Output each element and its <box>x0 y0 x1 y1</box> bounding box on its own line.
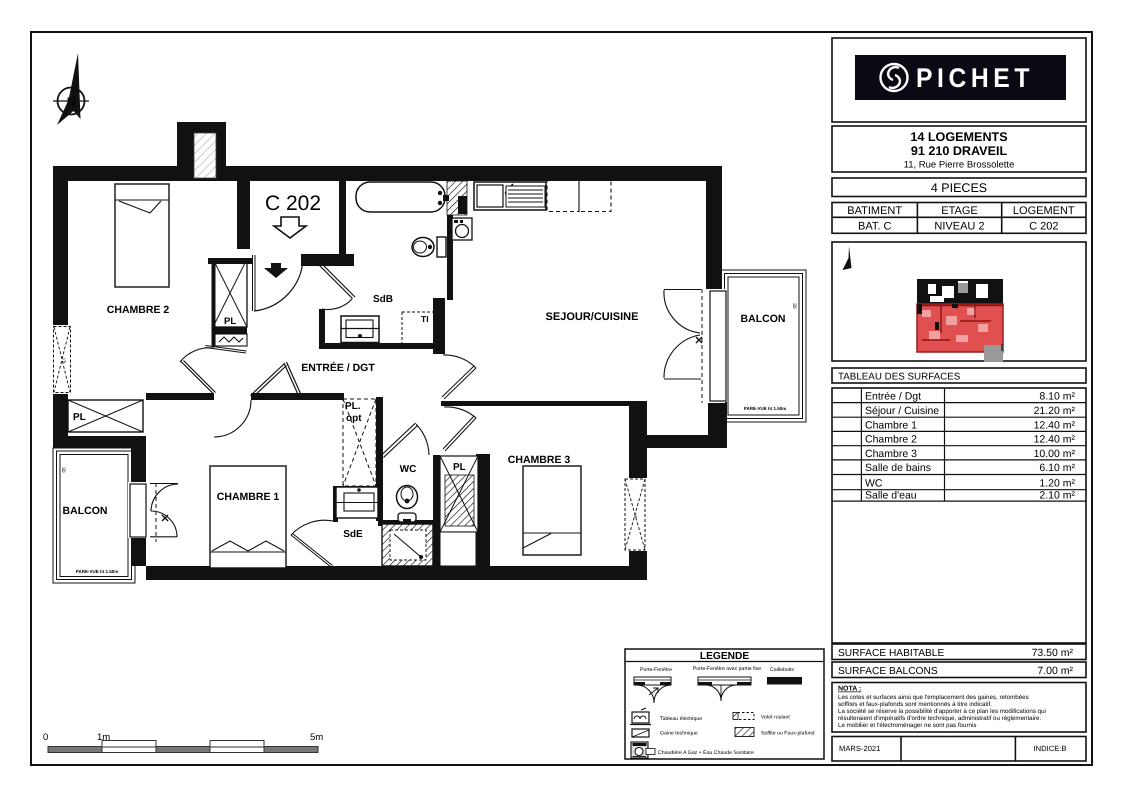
svg-text:Séjour / Cuisine: Séjour / Cuisine <box>865 405 939 417</box>
svg-text:Les cotes et surfaces ainsi qu: Les cotes et surfaces ainsi que l'emplac… <box>838 694 1029 701</box>
svg-text:5m: 5m <box>310 732 323 743</box>
svg-text:BALCON: BALCON <box>741 313 786 325</box>
svg-text:C 202: C 202 <box>265 192 321 215</box>
svg-text:Chambre 2: Chambre 2 <box>865 434 917 446</box>
svg-text:soffites et faux-plafonds sont: soffites et faux-plafonds sont mentionné… <box>838 701 992 708</box>
svg-text:WC: WC <box>865 477 883 489</box>
svg-text:Volet roulant: Volet roulant <box>761 715 790 721</box>
svg-text:2.10 m²: 2.10 m² <box>1039 490 1075 502</box>
svg-text:8.10 m²: 8.10 m² <box>1039 391 1075 403</box>
svg-text:30: 30 <box>60 467 66 473</box>
svg-text:12.40 m²: 12.40 m² <box>1034 419 1076 431</box>
svg-text:PL: PL <box>224 316 236 327</box>
svg-text:ENTRÉE / DGT: ENTRÉE / DGT <box>301 361 375 374</box>
svg-text:Caillebotis: Caillebotis <box>770 667 794 673</box>
svg-text:30: 30 <box>791 303 797 309</box>
svg-text:WC: WC <box>400 464 417 475</box>
svg-text:PARE-VUE ht 1.50m: PARE-VUE ht 1.50m <box>744 406 786 411</box>
svg-text:Salle d'eau: Salle d'eau <box>865 490 917 502</box>
svg-text:résulteraient d'impératifs d'o: résulteraient d'impératifs d'ordre techn… <box>838 715 1041 722</box>
svg-text:Le mobilier et l'électroménage: Le mobilier et l'électroménager ne sont … <box>838 722 976 729</box>
svg-text:6.10 m²: 6.10 m² <box>1039 462 1075 474</box>
svg-text:Chambre 1: Chambre 1 <box>865 419 917 431</box>
svg-text:LEGENDE: LEGENDE <box>700 651 749 662</box>
svg-text:BAT. C: BAT. C <box>858 221 891 233</box>
svg-text:PL: PL <box>453 462 466 473</box>
svg-text:CHAMBRE 1: CHAMBRE 1 <box>217 491 280 503</box>
svg-text:0: 0 <box>43 732 48 743</box>
svg-text:TI: TI <box>421 314 429 324</box>
svg-text:VR: VR <box>62 358 67 364</box>
svg-text:12.40 m²: 12.40 m² <box>1034 434 1076 446</box>
svg-text:7.00 m²: 7.00 m² <box>1037 665 1073 677</box>
svg-text:Entrée / Dgt: Entrée / Dgt <box>865 391 921 403</box>
svg-text:CHAMBRE 2: CHAMBRE 2 <box>107 304 170 316</box>
svg-text:C 202: C 202 <box>1029 221 1058 233</box>
svg-text:La société se réserve la possi: La société se réserve la possibilité d'a… <box>838 708 1046 715</box>
svg-text:TABLEAU DES SURFACES: TABLEAU DES SURFACES <box>838 372 961 383</box>
svg-text:SEJOUR/CUISINE: SEJOUR/CUISINE <box>546 311 639 323</box>
svg-text:PICHET: PICHET <box>916 63 1034 93</box>
svg-text:ETAGE: ETAGE <box>941 205 977 217</box>
svg-text:4 PIECES: 4 PIECES <box>931 181 987 195</box>
svg-text:VR: VR <box>633 513 638 519</box>
svg-text:BALCON: BALCON <box>63 505 108 517</box>
svg-text:91 210 DRAVEIL: 91 210 DRAVEIL <box>911 144 1008 158</box>
svg-text:Porte-Fenêtre: Porte-Fenêtre <box>640 667 672 673</box>
svg-text:Salle de bains: Salle de bains <box>865 462 931 474</box>
svg-text:SURFACE BALCONS: SURFACE BALCONS <box>838 666 938 677</box>
svg-text:N: N <box>67 95 76 110</box>
svg-text:10.00 m²: 10.00 m² <box>1034 448 1076 460</box>
svg-text:73.50 m²: 73.50 m² <box>1032 647 1074 659</box>
svg-text:PARE-VUE ht 1.50m: PARE-VUE ht 1.50m <box>76 569 118 574</box>
svg-text:CHAMBRE 3: CHAMBRE 3 <box>508 454 571 466</box>
svg-text:PL.: PL. <box>345 401 361 412</box>
svg-text:PL: PL <box>73 412 86 423</box>
svg-text:21.20 m²: 21.20 m² <box>1034 405 1076 417</box>
svg-text:BATIMENT: BATIMENT <box>847 205 902 217</box>
svg-text:SdE: SdE <box>343 529 363 540</box>
svg-text:14 LOGEMENTS: 14 LOGEMENTS <box>910 130 1007 144</box>
svg-text:NOTA :: NOTA : <box>838 686 861 693</box>
svg-text:MARS-2021: MARS-2021 <box>839 744 880 753</box>
svg-text:Chambre 3: Chambre 3 <box>865 448 917 460</box>
svg-text:11, Rue Pierre Brossolette: 11, Rue Pierre Brossolette <box>904 160 1015 171</box>
svg-text:Tableau électrique: Tableau électrique <box>660 716 702 722</box>
svg-text:LOGEMENT: LOGEMENT <box>1013 205 1075 217</box>
svg-text:NIVEAU 2: NIVEAU 2 <box>934 221 984 233</box>
svg-text:Soffite ou Faux-plafond: Soffite ou Faux-plafond <box>761 731 815 737</box>
svg-text:1.20 m²: 1.20 m² <box>1039 477 1075 489</box>
svg-text:INDICE:B: INDICE:B <box>1034 744 1067 753</box>
svg-text:opt: opt <box>346 413 362 424</box>
svg-text:SURFACE HABITABLE: SURFACE HABITABLE <box>838 648 944 659</box>
svg-text:SdB: SdB <box>373 294 393 305</box>
svg-text:Gaine technique: Gaine technique <box>660 731 698 737</box>
svg-text:Porte-Fenêtre avec partie fixe: Porte-Fenêtre avec partie fixe <box>693 666 761 672</box>
svg-text:Chaudière A Gaz + Eau Chaude S: Chaudière A Gaz + Eau Chaude Sanitaire <box>658 750 754 756</box>
